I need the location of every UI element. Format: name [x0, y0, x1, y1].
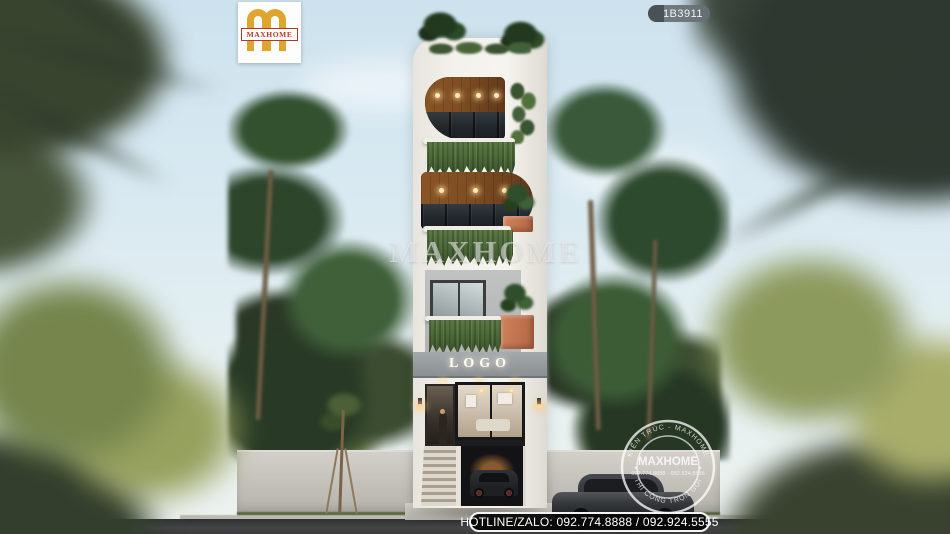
person-silhouette: [439, 414, 447, 444]
vertical-garden-strip: [509, 78, 537, 144]
architectural-render-scene: LOGO: [0, 0, 950, 534]
brand-banner-label: MAXHOME: [247, 30, 293, 39]
car-wheel: [504, 488, 514, 498]
window-glass: [425, 112, 505, 140]
wall-lamp-left: [418, 398, 422, 405]
design-id-label: 1B3911: [663, 8, 703, 20]
stamp-star-left: ✦: [633, 465, 638, 472]
hotline-bar: HOTLINE/ZALO: 092.774.8888 / 092.924.555…: [469, 512, 710, 532]
circular-watermark-stamp: KIẾN TRÚC - MAXHOME THI CÔNG TRỌN GÓI MA…: [616, 415, 720, 519]
sign-text: LOGO: [449, 356, 511, 372]
stamp-phone: 092.774.8888 - 092.924.5555: [631, 471, 704, 477]
entrance-door: [425, 384, 455, 446]
basement-garage: [458, 446, 526, 506]
design-id-tag: 1B3911: [648, 5, 710, 22]
stamp-arc-bottom-text: THI CÔNG TRỌN GÓI: [632, 477, 703, 505]
svg-text:THI CÔNG TRỌN GÓI: THI CÔNG TRỌN GÓI: [632, 477, 703, 505]
interior-wall-art: [498, 393, 512, 404]
svg-text:KIẾN TRÚC - MAXHOME: KIẾN TRÚC - MAXHOME: [626, 423, 709, 457]
car-windshield: [479, 473, 510, 483]
car-wheel: [474, 488, 484, 498]
interior-sofa: [476, 419, 510, 431]
center-watermark: MAXHOME: [396, 232, 576, 272]
floor3-window: [430, 280, 486, 320]
interior-wall-art: [466, 395, 476, 407]
brand-banner: MAXHOME: [241, 28, 298, 41]
logo-signboard: LOGO: [413, 352, 547, 378]
planter-box: [500, 315, 534, 349]
hotline-text: HOTLINE/ZALO: 092.774.8888 / 092.924.555…: [460, 515, 718, 529]
rooftop-shrubs: [429, 42, 531, 54]
ceiling-light-dot: [473, 188, 478, 193]
interior-light-dot: [510, 389, 513, 392]
interior-light-dot: [480, 389, 483, 392]
stamp-arc-top-text: KIẾN TRÚC - MAXHOME: [626, 423, 709, 457]
entry-staircase: [421, 446, 459, 506]
storefront-glass: [455, 382, 525, 440]
stamp-star-right: ✦: [697, 465, 702, 472]
stamp-name: MAXHOME: [638, 456, 698, 468]
floor5-balcony-opening: [425, 77, 505, 140]
staircase-stringer: [456, 446, 460, 506]
maxhome-brand-logo: MAXHOME: [238, 2, 301, 63]
wall-lamp-right: [537, 398, 541, 405]
balcony-tree: [501, 176, 537, 220]
